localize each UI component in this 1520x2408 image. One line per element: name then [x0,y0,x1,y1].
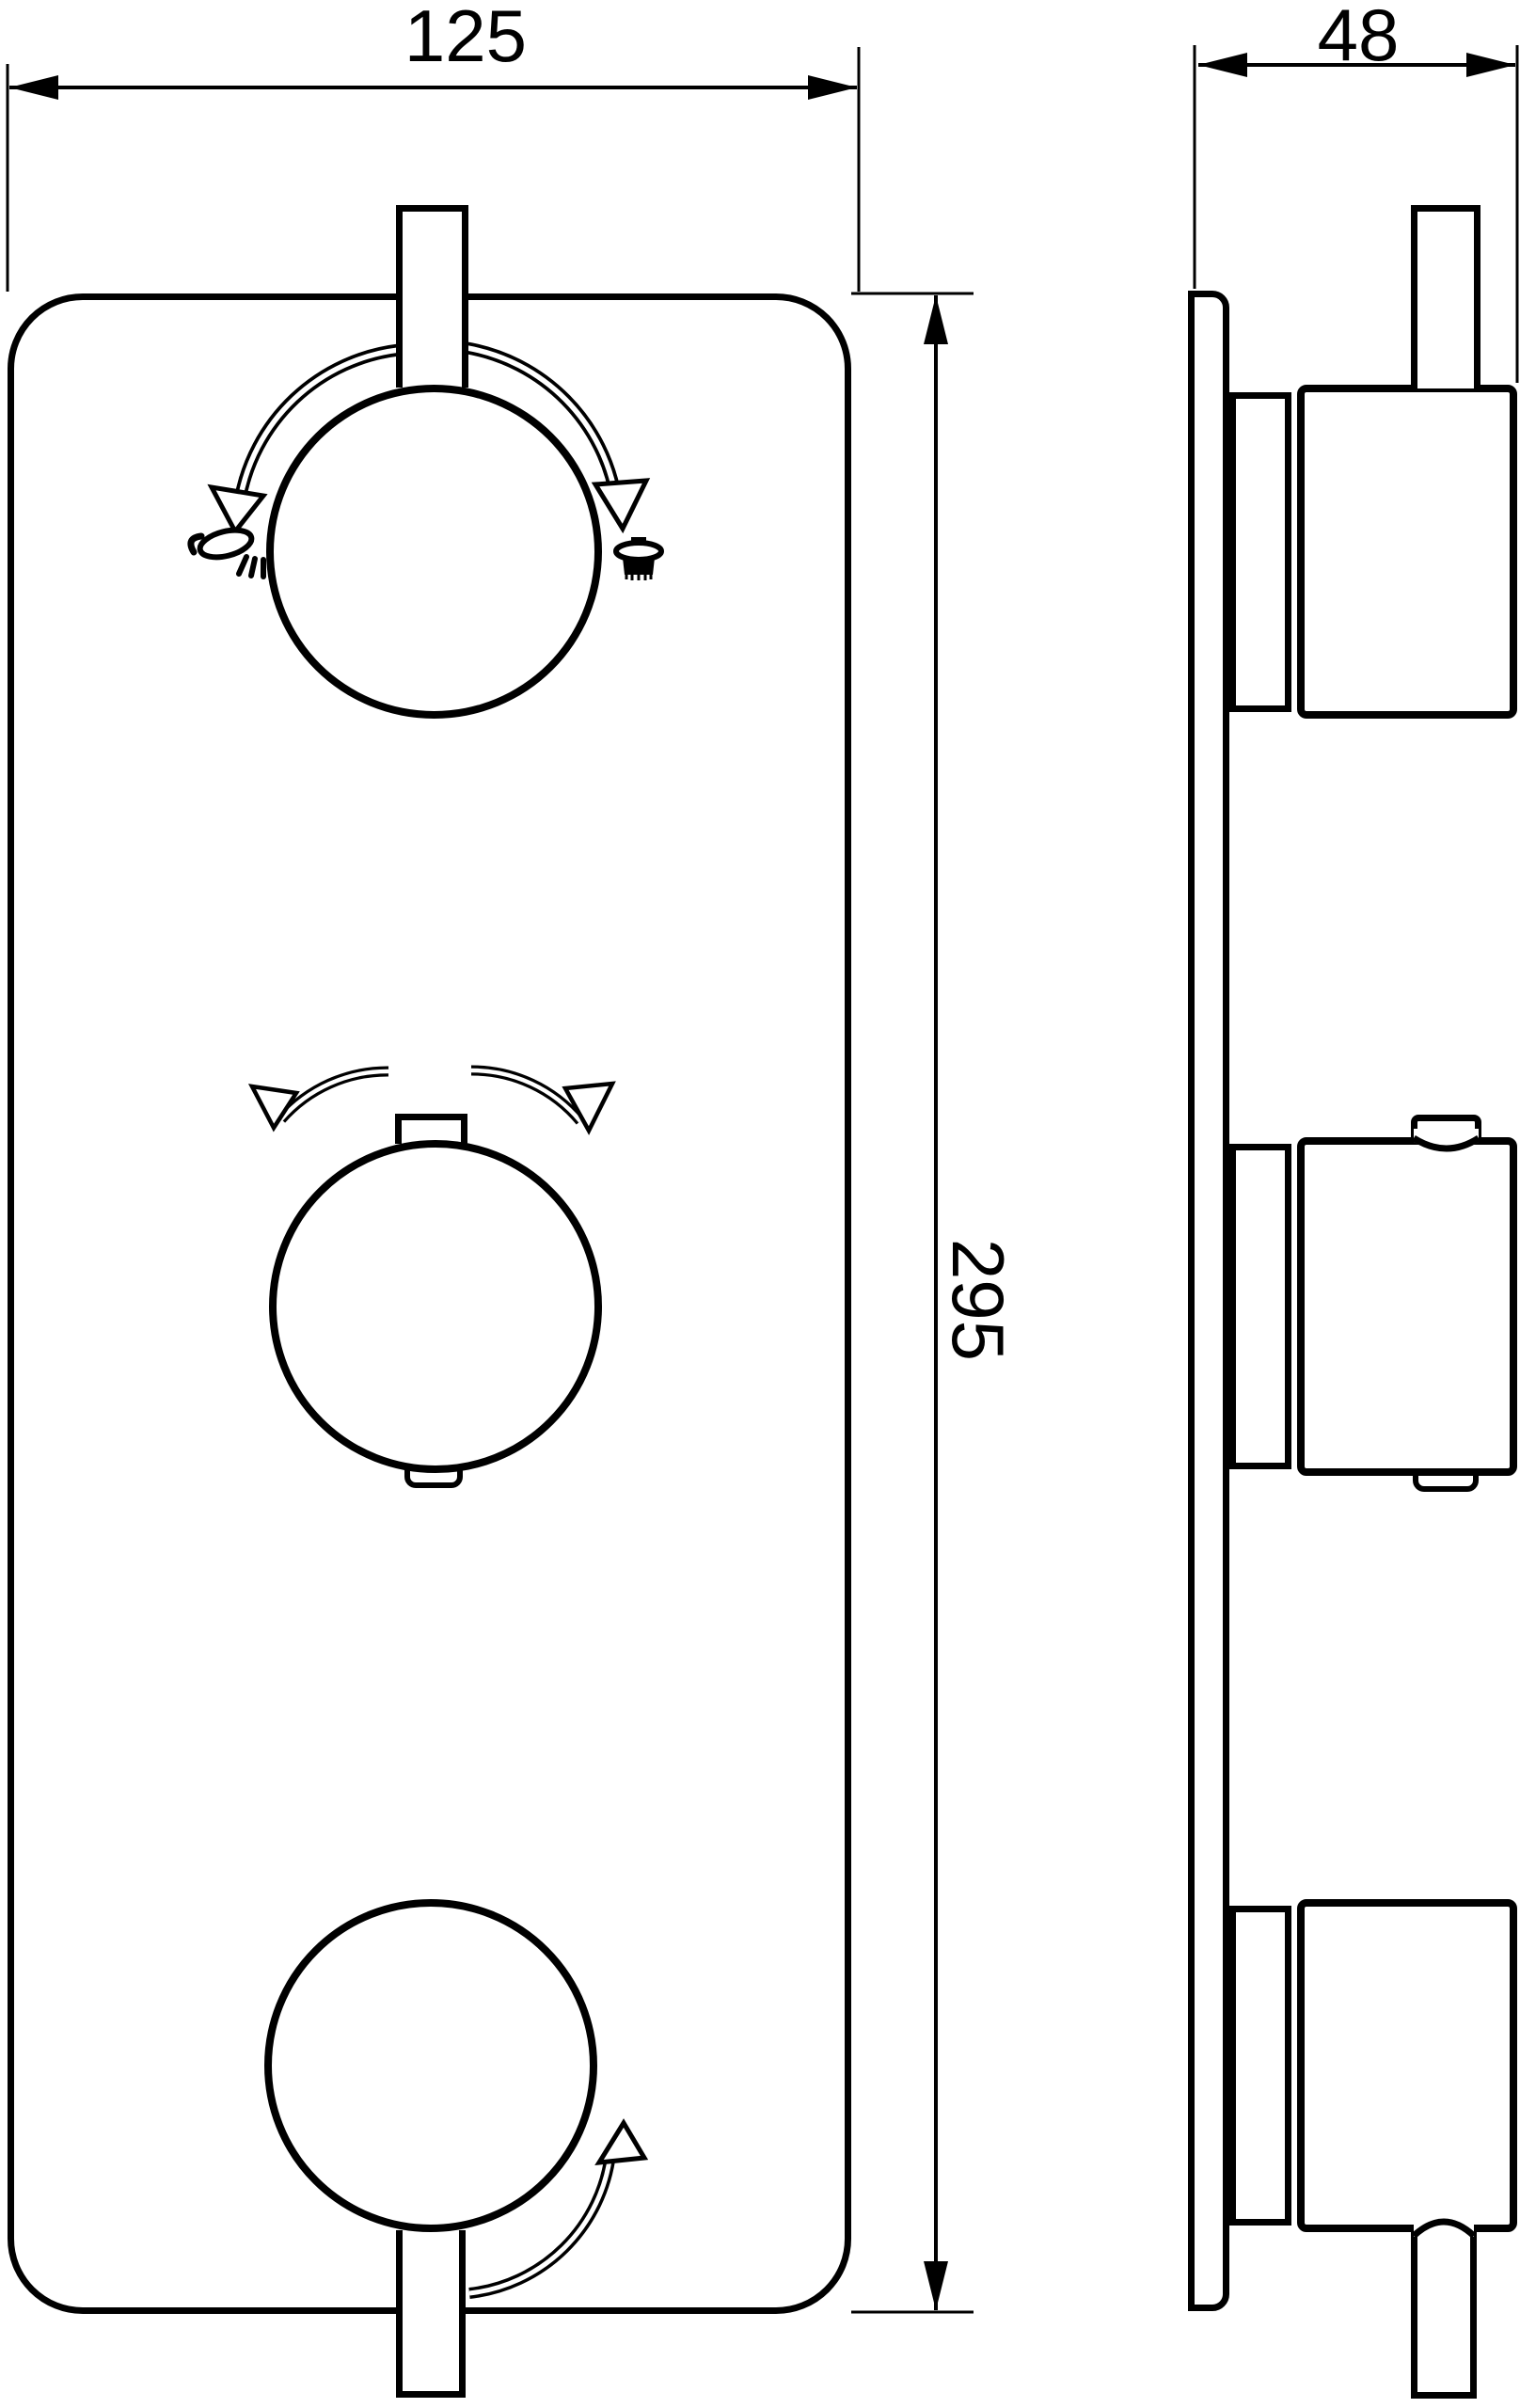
side-plate [1188,291,1229,2311]
diverter-knob [266,385,602,719]
flow-knob [264,1899,597,2232]
diverter-knob-stem [396,205,468,388]
side-top-knob-body [1297,385,1517,719]
side-middle-knob-body [1297,1137,1517,1476]
side-top-knob-stem [1411,205,1480,388]
side-middle-knob-base [1229,1144,1291,1469]
side-top-knob-base [1229,392,1291,712]
thermostat-knob [269,1140,602,1473]
side-bottom-knob-body [1297,1899,1517,2232]
side-bottom-knob-lever [1411,2230,1477,2399]
side-middle-knob-button [1411,1115,1481,1143]
flow-knob-stem [396,2230,466,2398]
side-bottom-knob-base [1229,1906,1291,2226]
technical-drawing-canvas: 125 295 38 HOT COLD ON 48 [0,0,1520,2408]
depth-dimension-label: 48 [1283,0,1433,70]
